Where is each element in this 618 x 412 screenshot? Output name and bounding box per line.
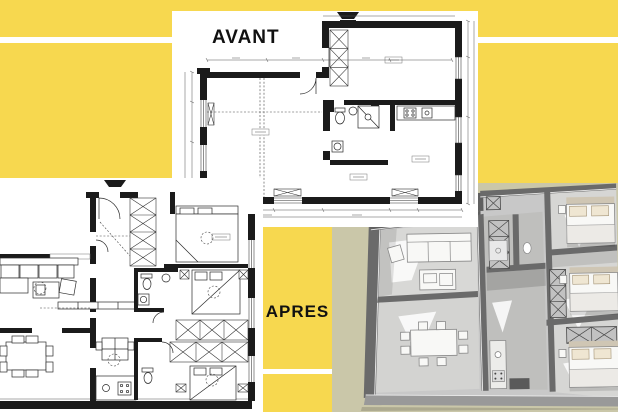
render-shower	[489, 240, 507, 260]
render-bed-1	[566, 197, 615, 248]
avant-label: AVANT	[212, 28, 280, 47]
apres-coffee-table	[33, 282, 59, 298]
apres-wardrobe-rows	[170, 320, 248, 362]
apres-label: APRES	[263, 303, 332, 320]
apres-plan-panel	[0, 178, 263, 412]
collage-canvas: AVANT	[0, 0, 618, 412]
render-sofa	[407, 233, 471, 262]
render-toilet	[523, 243, 531, 254]
apres-armchair	[59, 279, 76, 295]
avant-bathroom-fixtures	[332, 106, 379, 152]
chimney-icon	[337, 12, 359, 22]
render-coffee-table	[420, 269, 456, 290]
apres-dining-table	[0, 336, 53, 377]
render-bed-2	[569, 267, 618, 316]
chimney-icon	[104, 180, 126, 187]
apres-bed-3	[190, 366, 236, 400]
apres-bed-2	[192, 270, 240, 314]
apres-bathroom-fixtures	[138, 274, 170, 305]
avant-kitchen-counter	[397, 106, 455, 120]
apres-kitchen	[96, 338, 136, 400]
apres-floorplan-drawing	[0, 178, 263, 412]
render-bed-3	[569, 340, 618, 391]
